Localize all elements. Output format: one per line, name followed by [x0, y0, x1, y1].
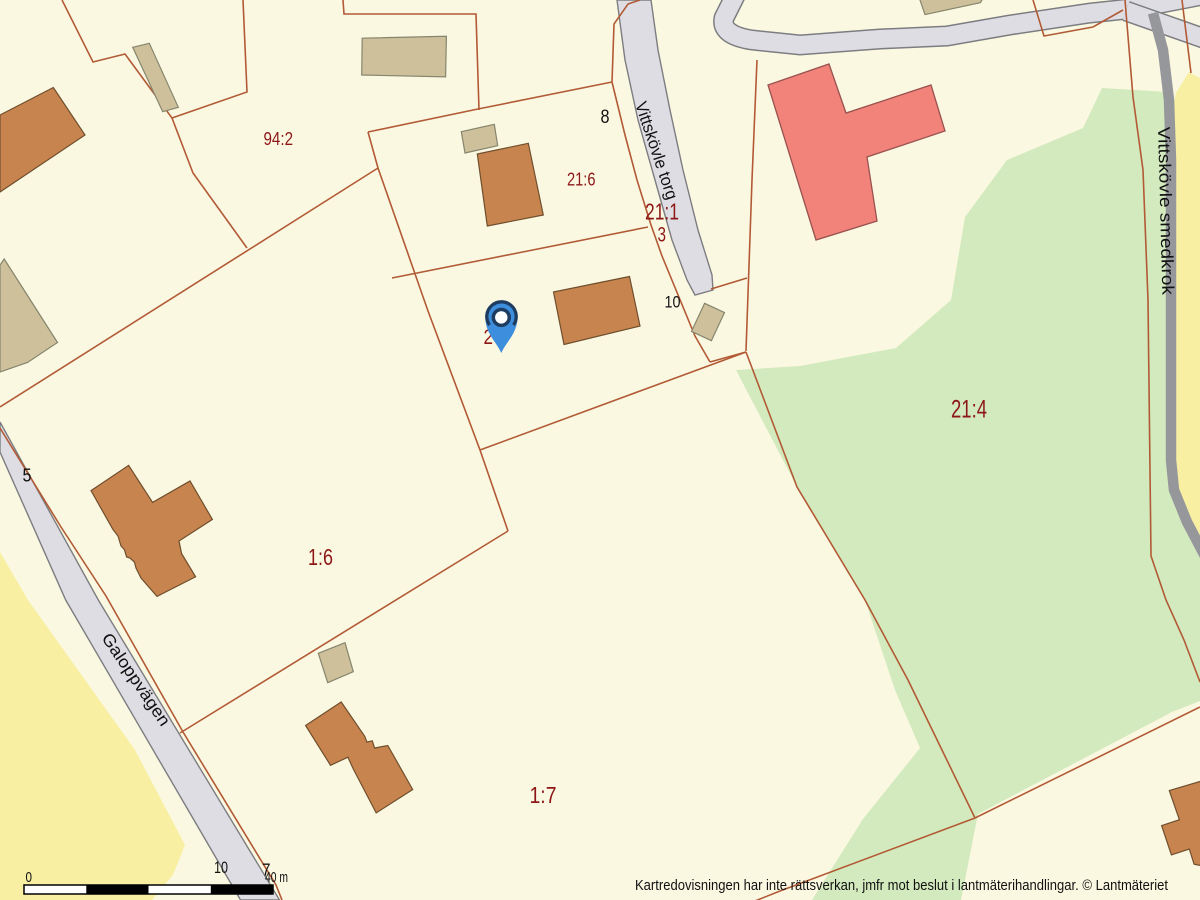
svg-text:21:4: 21:4 — [951, 396, 987, 424]
svg-text:1:7: 1:7 — [530, 782, 557, 808]
svg-text:0: 0 — [26, 869, 33, 886]
svg-text:3: 3 — [658, 224, 667, 247]
svg-text:94:2: 94:2 — [264, 128, 294, 149]
svg-text:1:6: 1:6 — [308, 544, 333, 570]
svg-text:10: 10 — [665, 294, 681, 312]
svg-text:5: 5 — [23, 465, 32, 486]
svg-text:21:1: 21:1 — [645, 199, 679, 225]
svg-text:40 m: 40 m — [265, 869, 288, 886]
svg-text:21:6: 21:6 — [567, 169, 596, 190]
svg-text:8: 8 — [601, 107, 610, 128]
svg-text:Kartredovisningen har inte rät: Kartredovisningen har inte rättsverkan, … — [635, 877, 1169, 894]
svg-text:10: 10 — [214, 858, 228, 877]
